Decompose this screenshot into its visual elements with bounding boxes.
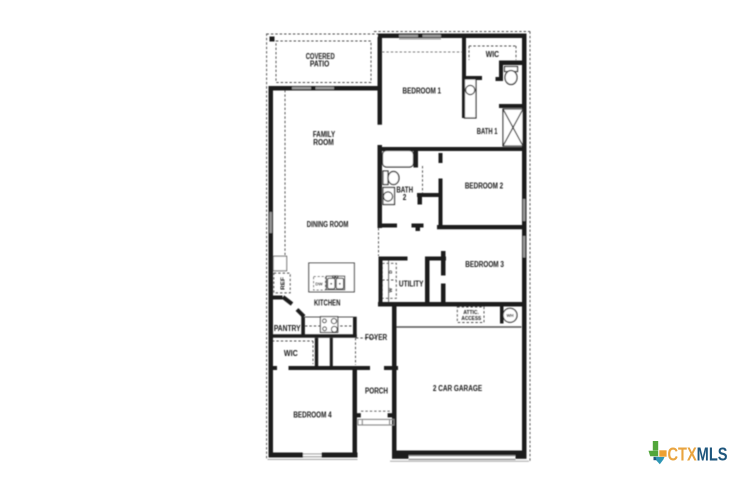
svg-text:2 CAR GARAGE: 2 CAR GARAGE [433, 383, 482, 393]
svg-text:WH: WH [507, 313, 514, 318]
svg-text:ROOM: ROOM [313, 137, 334, 147]
svg-text:D: D [388, 270, 394, 274]
svg-text:KITCHEN: KITCHEN [314, 298, 341, 308]
svg-text:PORCH: PORCH [365, 386, 388, 396]
svg-text:PANTRY: PANTRY [274, 323, 301, 333]
svg-text:WIC: WIC [486, 49, 500, 59]
svg-text:UTILITY: UTILITY [399, 279, 424, 289]
svg-text:BEDROOM 1: BEDROOM 1 [403, 86, 442, 96]
svg-text:FOYER: FOYER [365, 332, 388, 342]
svg-text:BEDROOM 2: BEDROOM 2 [465, 180, 503, 190]
svg-text:BEDROOM 4: BEDROOM 4 [293, 410, 331, 420]
svg-text:CTXMLS: CTXMLS [668, 444, 728, 465]
svg-text:ATTIC.: ATTIC. [463, 310, 479, 316]
svg-text:WIC: WIC [284, 348, 298, 358]
svg-text:PATIO: PATIO [310, 58, 330, 68]
svg-text:BEDROOM 3: BEDROOM 3 [465, 259, 504, 269]
svg-text:REF: REF [280, 277, 286, 290]
svg-text:2: 2 [403, 192, 407, 202]
svg-text:BATH 1: BATH 1 [477, 126, 498, 136]
svg-text:DW: DW [315, 282, 323, 288]
svg-text:DINING ROOM: DINING ROOM [307, 219, 349, 229]
svg-text:ACCESS: ACCESS [461, 316, 481, 322]
svg-text:W: W [388, 287, 394, 292]
